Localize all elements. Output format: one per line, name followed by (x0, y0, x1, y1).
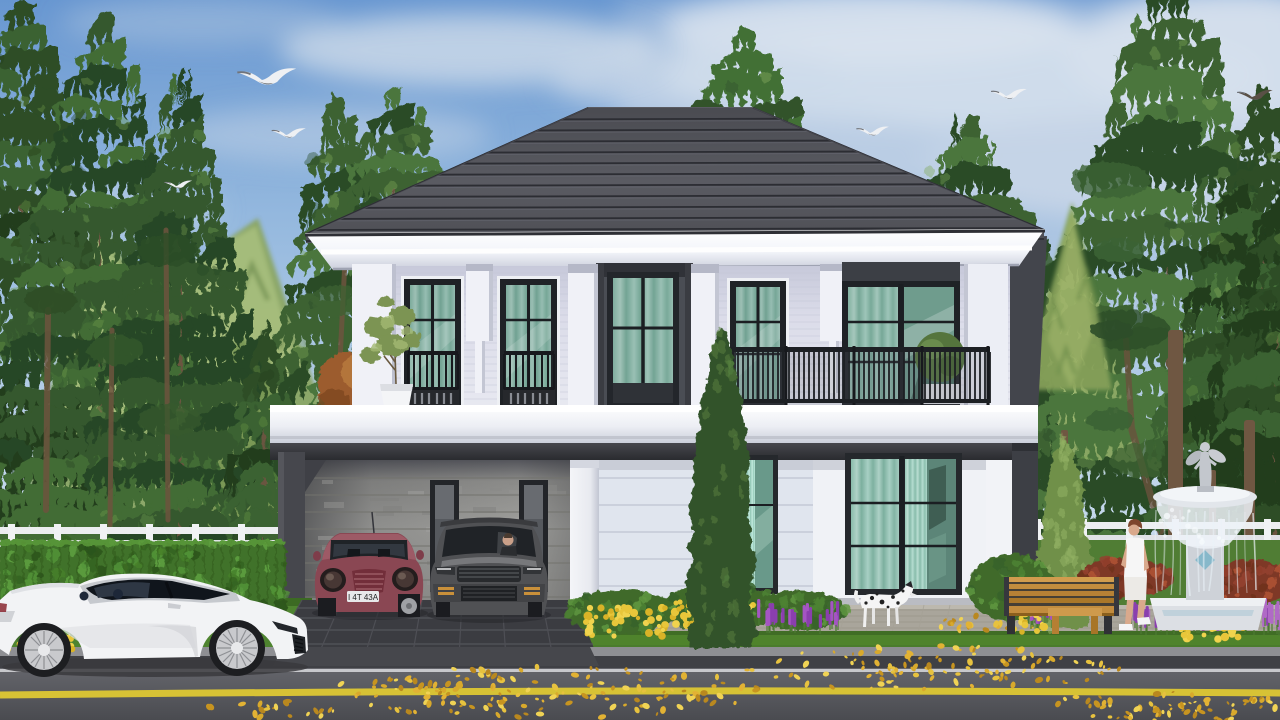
svg-text:I 4T 43A: I 4T 43A (348, 593, 379, 602)
